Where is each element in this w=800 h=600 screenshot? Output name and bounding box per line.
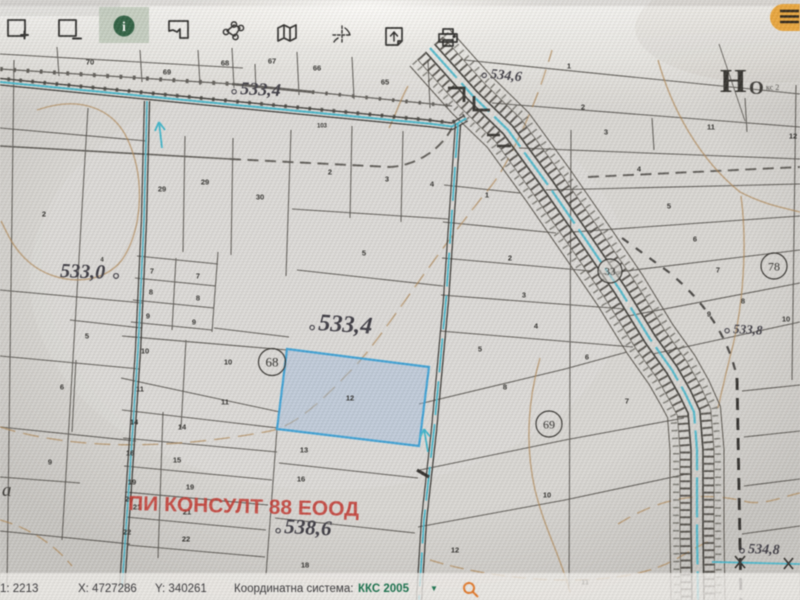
svg-text:9: 9 <box>192 318 196 327</box>
svg-text:29: 29 <box>158 185 166 194</box>
svg-text:7: 7 <box>150 267 154 276</box>
svg-text:10: 10 <box>224 358 232 367</box>
svg-text:533,4: 533,4 <box>318 310 374 340</box>
svg-text:5: 5 <box>85 332 89 341</box>
svg-text:11: 11 <box>221 398 229 407</box>
svg-text:29: 29 <box>201 178 209 187</box>
svg-text:13: 13 <box>300 446 308 455</box>
svg-text:1: 2213: 1: 2213 <box>0 583 38 595</box>
svg-text:69: 69 <box>543 417 555 431</box>
svg-text:15: 15 <box>173 456 181 465</box>
svg-text:18: 18 <box>301 561 309 570</box>
svg-text:12: 12 <box>346 394 354 403</box>
svg-text:14: 14 <box>130 418 139 427</box>
svg-text:▼: ▼ <box>430 584 438 593</box>
svg-text:12: 12 <box>451 546 459 555</box>
svg-text:1: 1 <box>567 62 571 71</box>
svg-text:а: а <box>2 480 12 501</box>
svg-text:22: 22 <box>123 528 131 537</box>
svg-text:7: 7 <box>625 397 629 406</box>
svg-text:11: 11 <box>136 385 144 394</box>
svg-text:534,8: 534,8 <box>748 542 780 558</box>
svg-text:78: 78 <box>768 259 780 273</box>
svg-text:7: 7 <box>716 266 720 275</box>
svg-text:533,8: 533,8 <box>733 321 763 338</box>
svg-text:ККС 2005: ККС 2005 <box>358 583 410 595</box>
svg-text:кс 2: кс 2 <box>766 83 779 92</box>
svg-text:Координатна система:: Координатна система: <box>234 583 353 595</box>
svg-text:8: 8 <box>149 288 153 297</box>
svg-text:10: 10 <box>782 315 790 324</box>
svg-text:5: 5 <box>667 202 671 211</box>
svg-text:7: 7 <box>196 272 200 281</box>
svg-text:11: 11 <box>707 123 715 132</box>
svg-text:30: 30 <box>256 193 264 202</box>
svg-text:2: 2 <box>508 254 512 263</box>
svg-text:5: 5 <box>362 249 366 258</box>
svg-text:2: 2 <box>42 210 46 219</box>
svg-text:70: 70 <box>86 58 94 67</box>
svg-text:533,0: 533,0 <box>60 260 106 284</box>
svg-text:3: 3 <box>604 128 608 137</box>
svg-text:6: 6 <box>693 235 697 244</box>
svg-text:9: 9 <box>48 458 52 467</box>
svg-text:19: 19 <box>128 478 136 487</box>
svg-text:14: 14 <box>178 423 187 432</box>
svg-text:H: H <box>720 63 746 100</box>
svg-text:22: 22 <box>182 535 190 544</box>
svg-text:1: 1 <box>485 191 489 200</box>
svg-text:10: 10 <box>543 491 551 500</box>
svg-text:533,4: 533,4 <box>240 78 281 100</box>
svg-text:6: 6 <box>585 353 589 362</box>
svg-text:6: 6 <box>60 383 64 392</box>
svg-text:9: 9 <box>707 310 711 319</box>
svg-text:X: 4727286: X: 4727286 <box>78 583 137 595</box>
svg-text:16: 16 <box>126 449 134 458</box>
svg-text:5: 5 <box>478 345 482 354</box>
svg-text:65: 65 <box>381 78 389 87</box>
svg-text:8: 8 <box>503 383 507 392</box>
svg-text:66: 66 <box>313 64 321 73</box>
svg-text:i: i <box>122 20 126 35</box>
svg-text:69: 69 <box>163 68 171 77</box>
svg-text:103: 103 <box>317 124 328 130</box>
svg-text:12: 12 <box>789 132 797 141</box>
svg-text:16: 16 <box>297 475 305 484</box>
svg-text:2: 2 <box>581 103 585 112</box>
svg-text:68: 68 <box>266 355 279 370</box>
svg-text:O: O <box>749 78 764 99</box>
svg-text:8: 8 <box>741 297 745 306</box>
svg-text:2: 2 <box>328 168 332 177</box>
svg-text:19: 19 <box>186 483 194 492</box>
svg-text:68: 68 <box>221 59 229 68</box>
svg-text:10: 10 <box>141 347 149 356</box>
svg-text:Y: 340261: Y: 340261 <box>155 583 207 595</box>
svg-text:9: 9 <box>146 312 150 321</box>
svg-text:67: 67 <box>268 57 276 66</box>
svg-text:33: 33 <box>605 266 617 278</box>
svg-text:3: 3 <box>385 175 389 184</box>
svg-text:8: 8 <box>196 294 200 303</box>
svg-text:3: 3 <box>522 291 526 300</box>
